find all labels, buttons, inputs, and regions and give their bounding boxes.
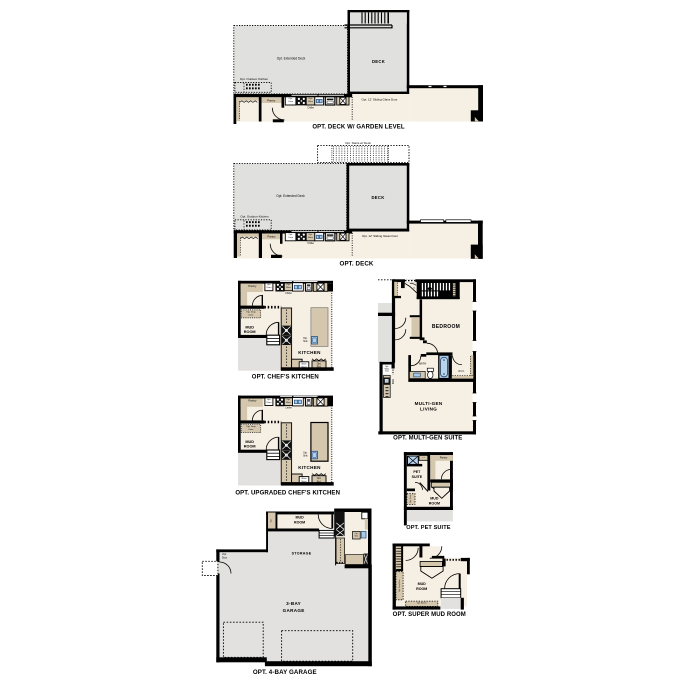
svg-text:Opt.: Opt. (286, 283, 290, 286)
svg-text:Door: Door (222, 556, 227, 559)
svg-text:Zone: Zone (248, 314, 254, 316)
svg-text:DECK: DECK (371, 195, 384, 200)
svg-text:Opt. 12' Sliding Glass Door: Opt. 12' Sliding Glass Door (362, 234, 398, 238)
svg-text:x x: x x (422, 457, 424, 459)
svg-text:OPT. CHEF'S KITCHEN: OPT. CHEF'S KITCHEN (252, 374, 319, 380)
svg-text:W.I.C.: W.I.C. (458, 370, 465, 373)
svg-text:ROOM: ROOM (244, 330, 256, 334)
svg-text:Chiller: Chiller (285, 407, 292, 410)
svg-text:Opt.: Opt. (270, 518, 273, 522)
svg-text:DECK: DECK (372, 59, 385, 64)
svg-text:Sink: Sink (355, 536, 359, 538)
svg-text:OPT. MULTI-GEN SUITE: OPT. MULTI-GEN SUITE (393, 436, 462, 442)
svg-text:Wash: Wash (301, 478, 307, 480)
svg-text:OPT. PET SUITE: OPT. PET SUITE (406, 525, 450, 531)
svg-text:Opt. Drop: Opt. Drop (246, 425, 256, 428)
svg-text:KITCHEN: KITCHEN (298, 465, 321, 470)
svg-text:STORAGE: STORAGE (292, 551, 312, 555)
svg-text:Oven: Oven (288, 237, 294, 239)
svg-text:Opt. Drop: Opt. Drop (409, 495, 412, 503)
svg-text:Opt.: Opt. (303, 337, 308, 340)
svg-text:Opt.: Opt. (309, 233, 313, 236)
svg-text:MUD: MUD (430, 497, 439, 501)
svg-text:ROOM: ROOM (429, 502, 440, 506)
svg-text:BAR: BAR (391, 379, 395, 384)
svg-text:Chiller: Chiller (307, 106, 314, 109)
svg-text:Opt. Extended Deck: Opt. Extended Deck (276, 194, 305, 198)
svg-text:Zone: Zone (248, 429, 254, 431)
svg-text:OPT. DECK: OPT. DECK (340, 260, 374, 267)
svg-text:Opt. Bench: Opt. Bench (417, 602, 427, 605)
svg-text:PET: PET (413, 470, 421, 474)
svg-text:BEDROOM: BEDROOM (432, 324, 460, 330)
svg-text:Opt.: Opt. (267, 283, 271, 286)
svg-text:Wine: Wine (308, 237, 314, 239)
svg-text:Opt. Drop Zone: Opt. Drop Zone (398, 580, 401, 592)
svg-text:ROOM: ROOM (244, 445, 256, 449)
svg-text:MUD: MUD (296, 516, 305, 520)
svg-text:Wash: Wash (301, 363, 307, 365)
svg-text:Opt.: Opt. (303, 452, 308, 455)
svg-text:Oven: Oven (288, 101, 294, 103)
svg-text:Pantry: Pantry (267, 235, 276, 239)
svg-text:Chiller: Chiller (307, 242, 314, 245)
svg-text:MUD: MUD (245, 440, 254, 444)
svg-text:KITCHEN: KITCHEN (298, 350, 321, 355)
svg-text:Opt. Outdoor Kitchen: Opt. Outdoor Kitchen (240, 77, 269, 81)
svg-text:Opt. Stairs w/ Deck: Opt. Stairs w/ Deck (345, 141, 371, 145)
svg-text:ROOM: ROOM (294, 520, 305, 524)
svg-text:MUD: MUD (418, 582, 427, 586)
svg-text:Opt.: Opt. (309, 97, 313, 100)
svg-text:MULTI-GEN: MULTI-GEN (415, 401, 443, 406)
svg-text:Opt.: Opt. (286, 398, 290, 401)
svg-text:GARAGE: GARAGE (283, 608, 305, 613)
svg-text:Opt.: Opt. (267, 398, 271, 401)
svg-text:Opt.: Opt. (289, 233, 293, 236)
svg-text:Wine: Wine (286, 402, 292, 404)
svg-text:BATH: BATH (419, 362, 426, 366)
svg-text:Chiller: Chiller (285, 292, 292, 295)
svg-text:ROOM: ROOM (416, 587, 427, 591)
svg-text:MUD: MUD (245, 325, 254, 329)
svg-text:Opt.: Opt. (289, 97, 293, 100)
svg-text:OPT. UPGRADED CHEF'S KITCHEN: OPT. UPGRADED CHEF'S KITCHEN (235, 491, 340, 497)
svg-text:Pantry: Pantry (248, 399, 257, 403)
svg-text:Opt. Drop: Opt. Drop (246, 310, 256, 313)
svg-text:Opt. Outdoor Kitchen: Opt. Outdoor Kitchen (240, 214, 269, 218)
svg-text:Oven: Oven (266, 402, 272, 404)
svg-text:OPT. SUPER MUD ROOM: OPT. SUPER MUD ROOM (393, 612, 466, 618)
svg-text:Wine: Wine (286, 287, 292, 289)
svg-text:Pantry: Pantry (248, 284, 257, 288)
svg-text:Chil.: Chil. (385, 371, 389, 373)
svg-text:OPT. 4-BAY GARAGE: OPT. 4-BAY GARAGE (253, 669, 317, 676)
svg-text:Cl.: Cl. (413, 288, 416, 290)
svg-text:Pantry: Pantry (440, 455, 448, 459)
svg-text:SUITE: SUITE (412, 475, 423, 479)
svg-text:3-BAY: 3-BAY (286, 601, 301, 606)
svg-text:Oven: Oven (266, 287, 272, 289)
svg-text:Wine: Wine (308, 101, 314, 103)
svg-text:LIVING: LIVING (420, 407, 437, 412)
svg-text:Opt. 12' Sliding Glass Door: Opt. 12' Sliding Glass Door (361, 98, 397, 102)
svg-text:Pantry: Pantry (267, 98, 276, 102)
svg-text:OPT. DECK W/ GARDEN LEVEL: OPT. DECK W/ GARDEN LEVEL (312, 124, 404, 130)
svg-text:Opt. Extended Deck: Opt. Extended Deck (277, 57, 306, 61)
